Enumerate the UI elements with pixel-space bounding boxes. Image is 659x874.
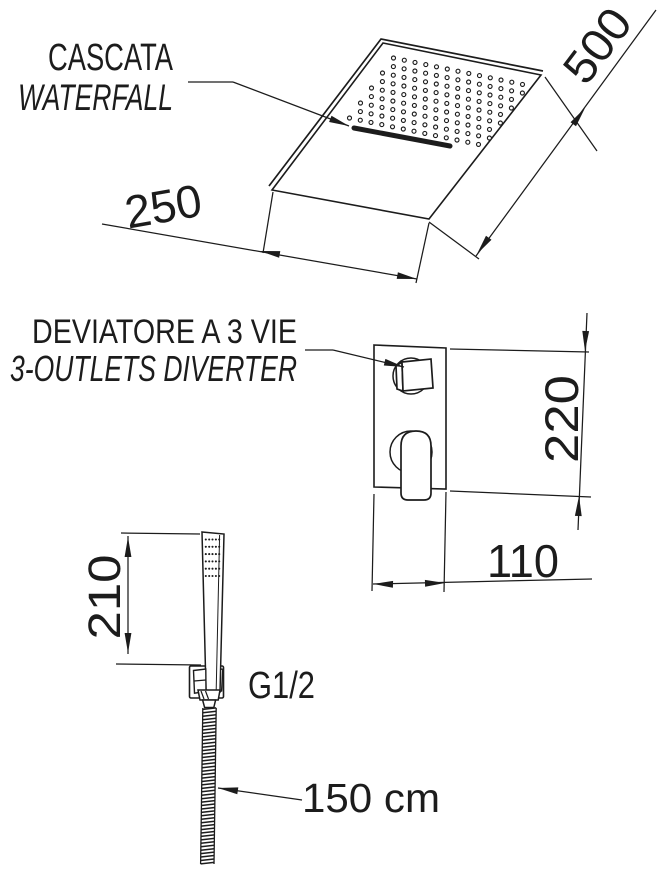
hand-shower-wand [202, 532, 224, 692]
dimension-110-value: 110 [487, 535, 559, 587]
hand-shower-figure: 210 G1/2 150 cm [79, 532, 440, 864]
flexible-hose [201, 708, 217, 864]
dimension-210-value: 210 [79, 555, 130, 640]
connection-size-label: G1/2 [248, 665, 315, 707]
diverter-label-italian: DEVIATORE A 3 VIE [32, 313, 297, 351]
diverter-label-english: 3-OUTLETS DIVERTER [10, 348, 297, 389]
diverter-lever-handle [401, 431, 431, 500]
waterfall-label-italian: CASCATA [48, 37, 173, 79]
diverter-knob-front [402, 359, 433, 391]
technical-drawing-page: CASCATA WATERFALL 250 500 DEVIATORE A 3 … [0, 0, 659, 874]
dimension-250-value: 250 [121, 174, 206, 239]
waterfall-label-english: WATERFALL [18, 77, 173, 118]
diverter-figure: DEVIATORE A 3 VIE 3-OUTLETS DIVERTER 220… [10, 313, 588, 587]
hose-connector-taper [203, 700, 216, 708]
shower-set-technical-drawing: CASCATA WATERFALL 250 500 DEVIATORE A 3 … [0, 0, 659, 874]
dimension-220-value: 220 [535, 375, 588, 463]
hose-length-label: 150 cm [302, 775, 440, 821]
